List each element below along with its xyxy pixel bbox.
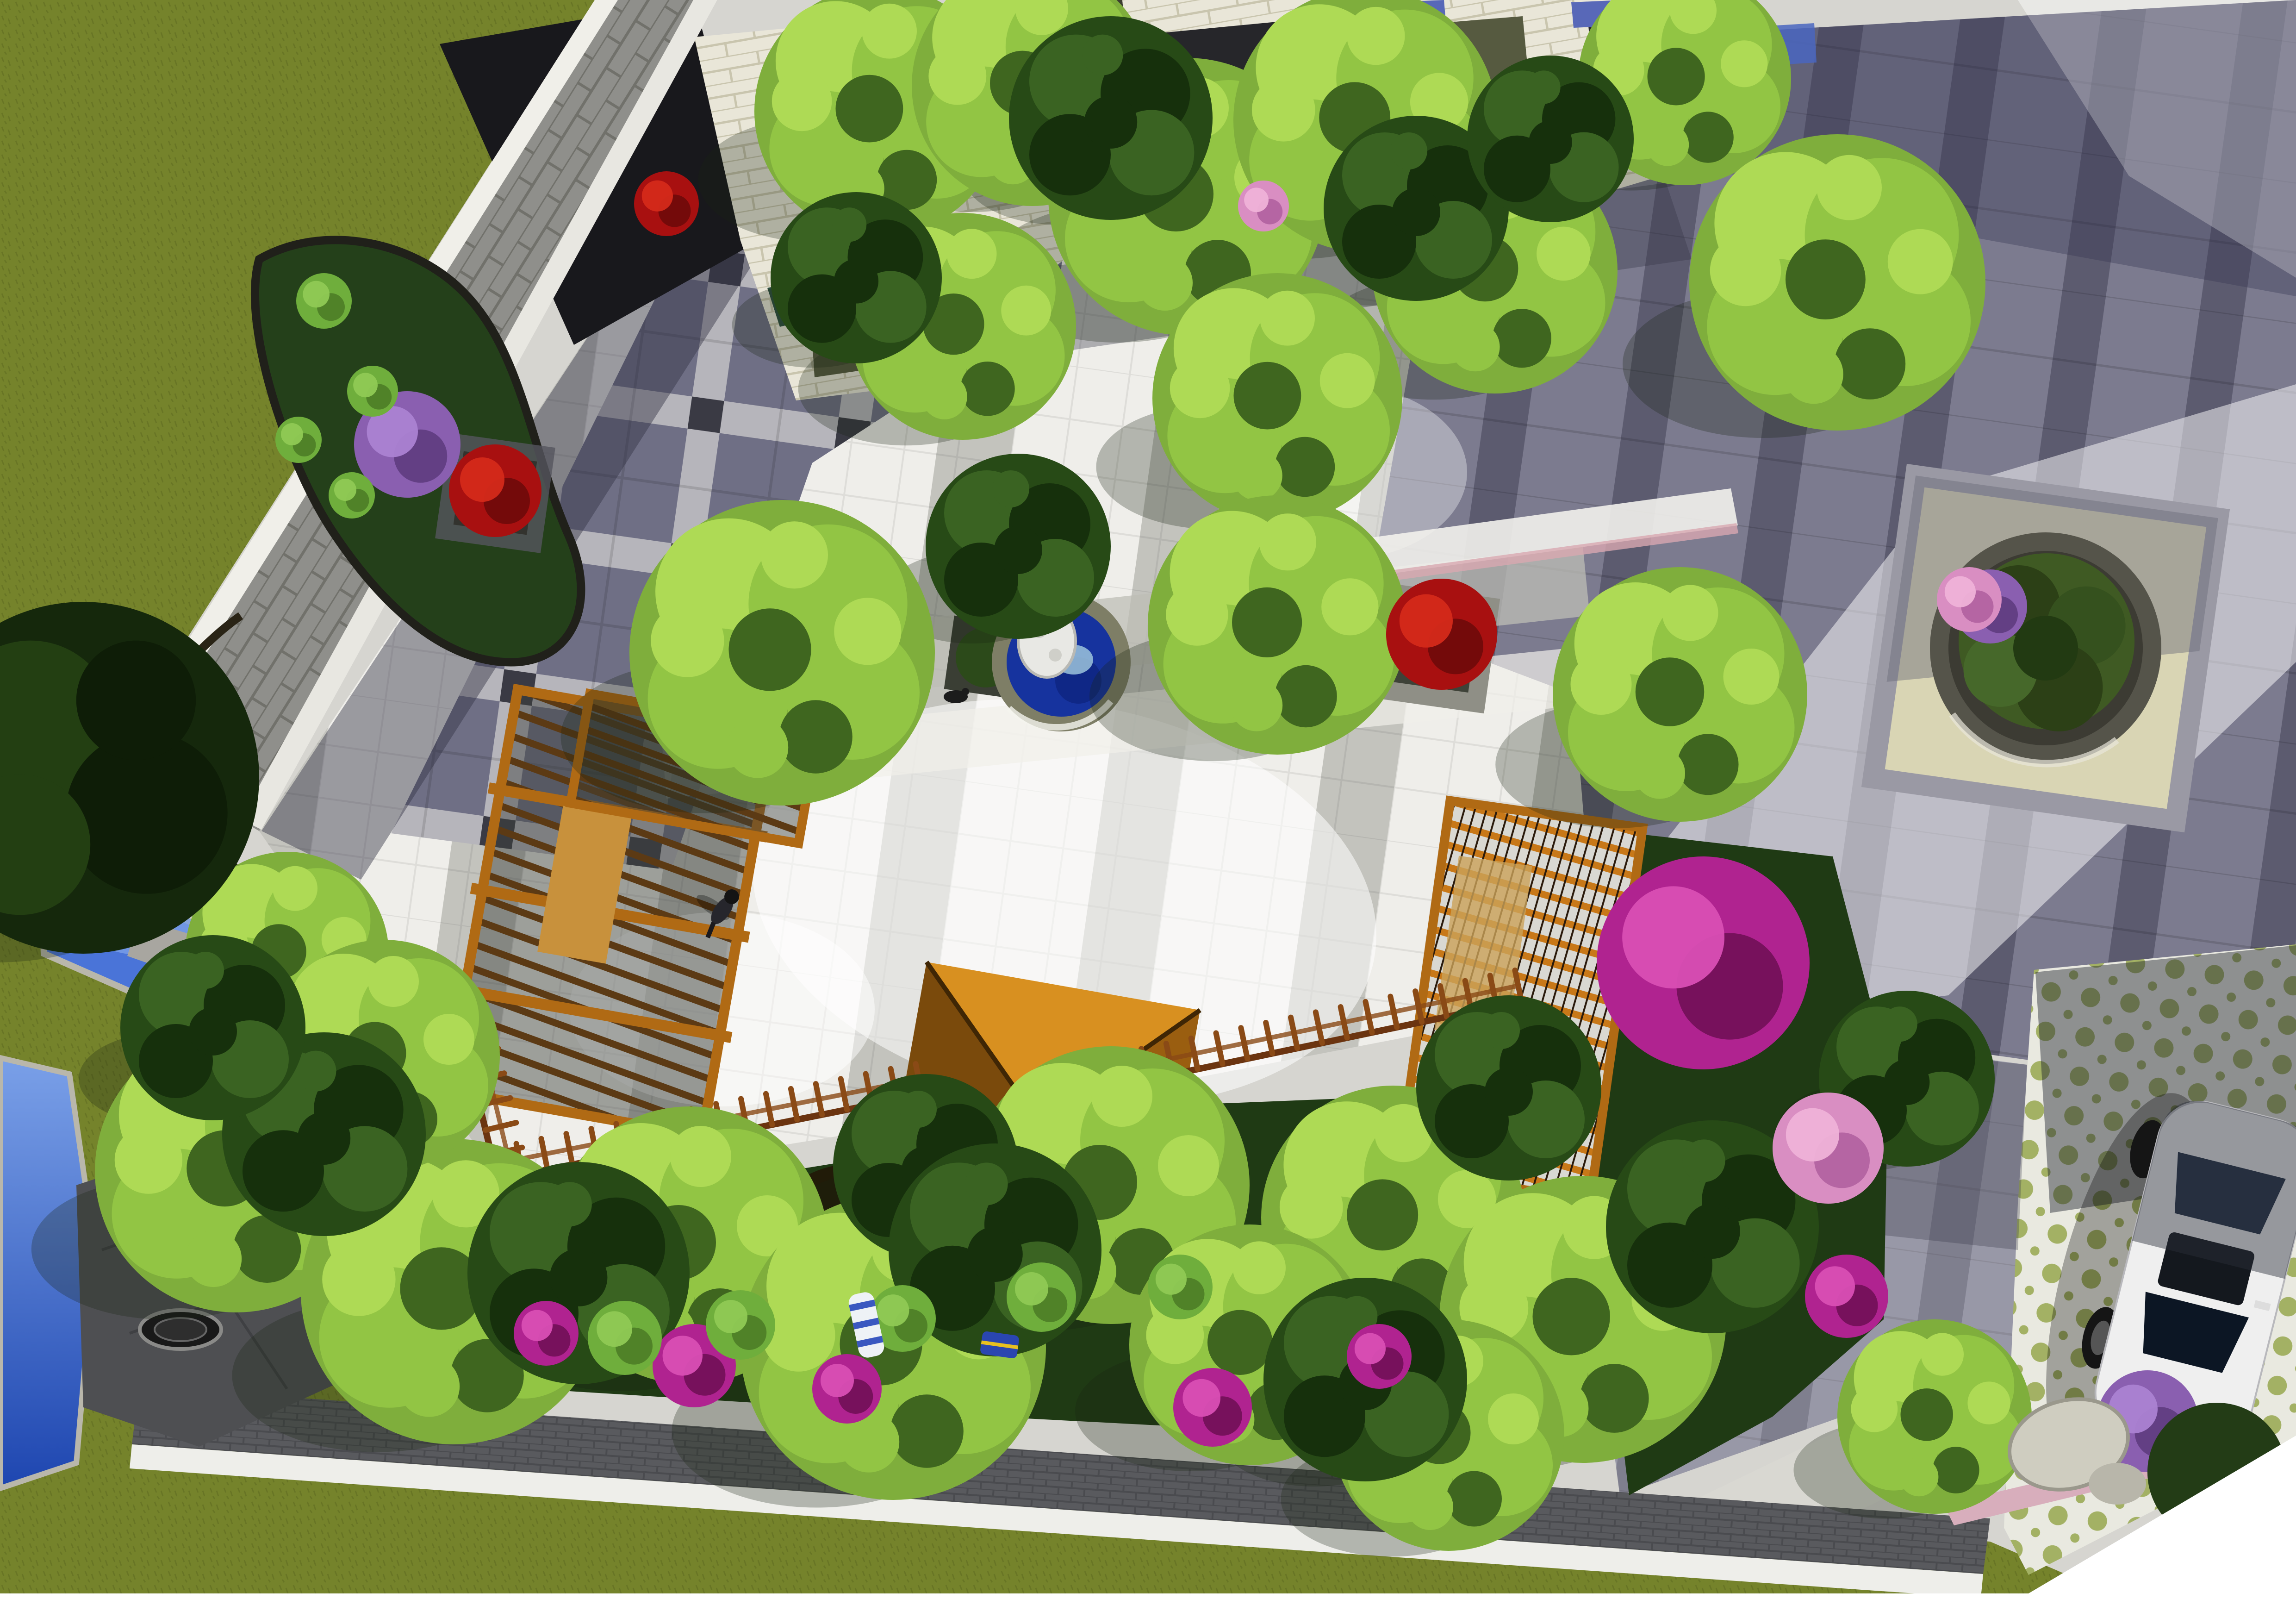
tree-canopy-light: [1152, 273, 1402, 523]
flower-clump-magenta: [1597, 856, 1810, 1069]
flower-clump-bush_light: [588, 1301, 662, 1375]
flower-clump-bush_light: [1148, 1255, 1213, 1319]
tree-canopy-dark: [1009, 16, 1213, 220]
flower-highlight: [1182, 1379, 1220, 1417]
flower-highlight: [1015, 1272, 1048, 1305]
flower-highlight: [1355, 1333, 1386, 1364]
flower-highlight: [714, 1300, 747, 1333]
render-canvas: [0, 0, 2296, 1624]
flower-clump-bush_light: [329, 472, 375, 518]
flower-highlight: [877, 1294, 909, 1326]
flower-clump-magenta: [1347, 1324, 1412, 1389]
tree-canopy-dark: [120, 935, 305, 1120]
flower-highlight: [1244, 187, 1269, 212]
flower-clump-bush_light: [706, 1290, 775, 1360]
tree-canopy-dark: [1467, 56, 1634, 222]
flower-highlight: [663, 1336, 703, 1375]
flower-clump-bush_light: [296, 273, 352, 329]
flower-clump-lilac: [1937, 567, 2002, 632]
tree-canopy-light: [1553, 567, 1807, 822]
flower-clump-magenta: [812, 1354, 882, 1424]
boulder-small: [2089, 1463, 2146, 1505]
flower-highlight: [334, 479, 356, 501]
flower-highlight: [281, 423, 303, 445]
tree-canopy-dark: [926, 454, 1111, 639]
flower-highlight: [1156, 1264, 1187, 1295]
drain-cover-inner: [155, 1318, 206, 1341]
flower-clump-bush_light: [1007, 1262, 1076, 1332]
tree-canopy-light: [629, 500, 935, 806]
flower-clump-magenta: [514, 1301, 579, 1366]
tree-canopy-dark: [1416, 995, 1601, 1181]
flower-highlight: [303, 281, 330, 308]
flower-highlight: [1622, 886, 1724, 988]
flower-clump-magenta: [1173, 1368, 1252, 1447]
sculpture-detail: [1049, 649, 1062, 662]
flower-clump-bush_light: [275, 417, 322, 463]
tree-canopy-light: [1689, 134, 1985, 431]
flower-highlight: [522, 1310, 553, 1341]
flower-highlight: [353, 373, 378, 397]
flower-clump-lilac: [1773, 1093, 1884, 1204]
flower-clump-bush_light: [347, 366, 398, 417]
flower-highlight: [1945, 576, 1976, 607]
flower-highlight: [460, 457, 504, 502]
flower-clump-red: [449, 444, 541, 537]
flower-clump-red: [1386, 579, 1497, 690]
flower-clump-magenta: [1805, 1255, 1888, 1338]
flower-clump-lilac: [1238, 181, 1289, 231]
flower-clump-red: [634, 171, 699, 236]
flower-highlight: [597, 1311, 632, 1347]
flower-highlight: [642, 181, 673, 212]
flower-highlight: [1400, 594, 1453, 648]
flower-highlight: [1815, 1266, 1855, 1306]
landscape-render: [0, 0, 2296, 1624]
tree-canopy-dark: [771, 192, 942, 363]
flower-highlight: [1786, 1108, 1839, 1162]
tree-canopy-light: [1837, 1319, 2032, 1514]
bottom-margin: [0, 1593, 2296, 1624]
round-planter-square: [1873, 475, 2218, 820]
tree-canopy-light: [1148, 495, 1407, 755]
flower-highlight: [821, 1364, 854, 1397]
